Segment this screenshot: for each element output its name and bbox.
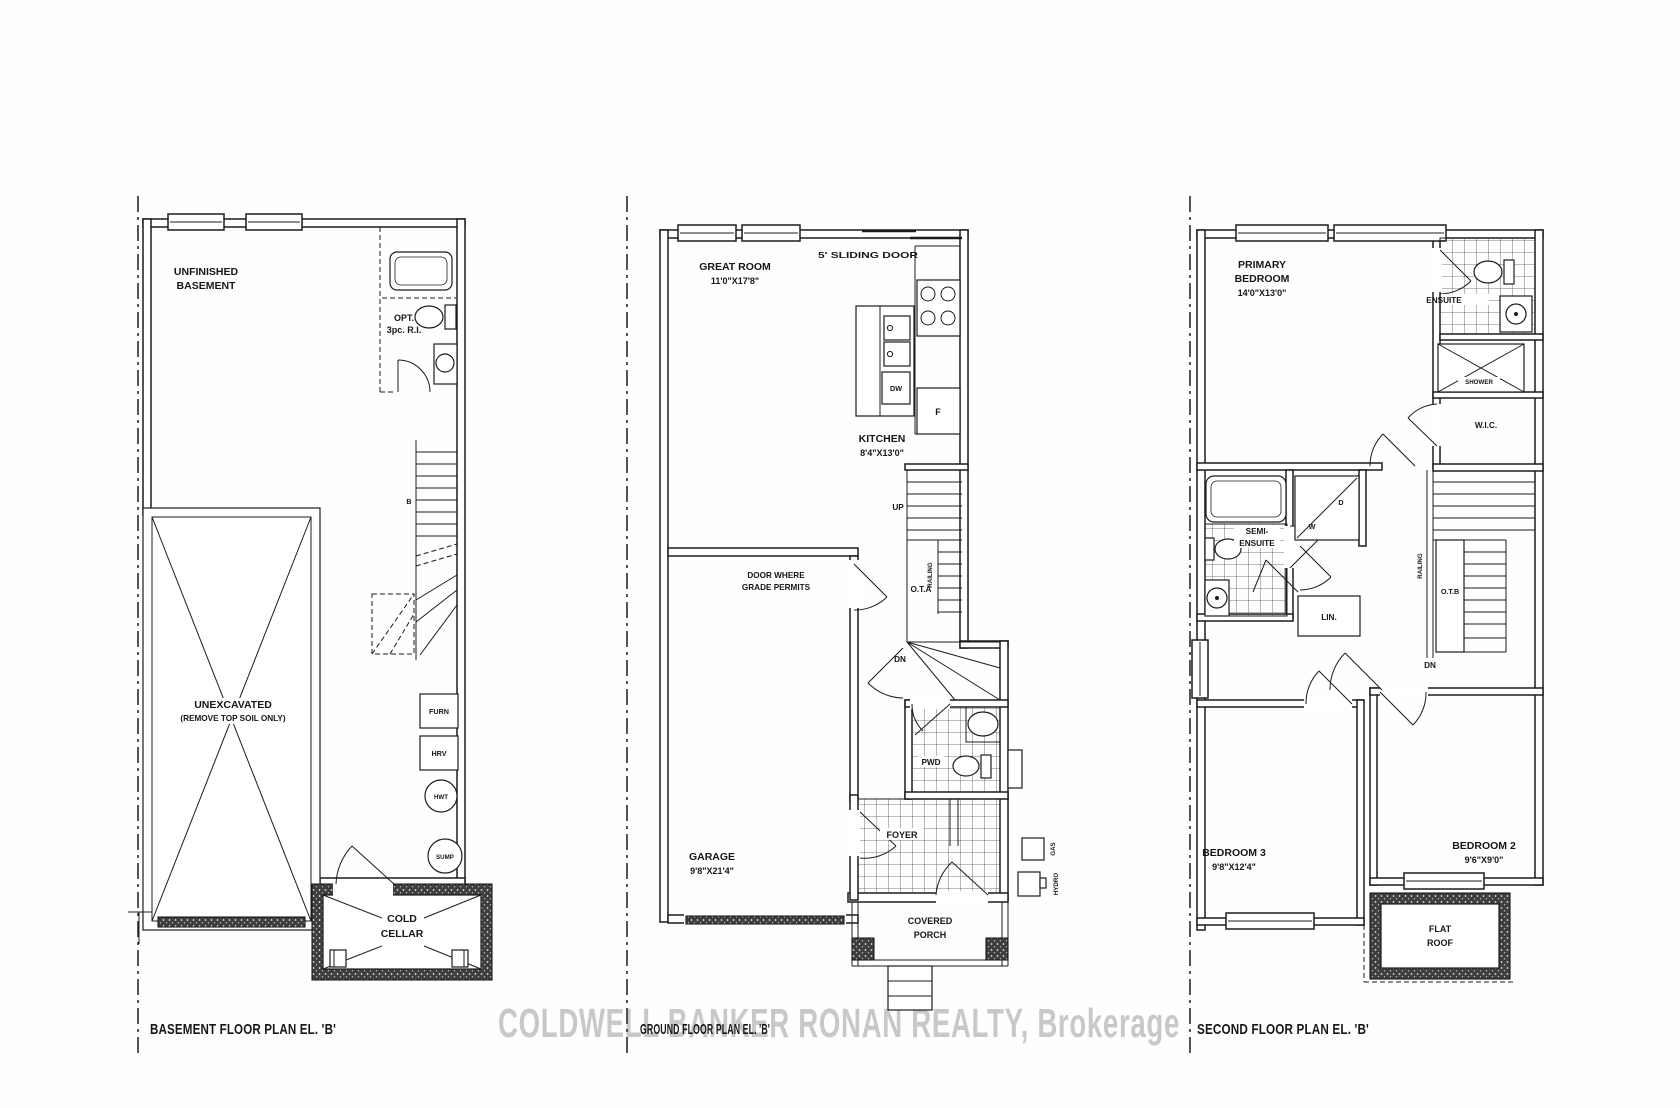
tub-icon [390,252,452,290]
ensuite [1431,238,1535,334]
tub-icon [1206,476,1286,522]
door-swing [398,360,430,392]
pwd-label: PWD [921,758,940,767]
hrv-label: HRV [431,749,446,758]
ground-title: GROUND FLOOR PLAN EL. 'B' [640,1021,770,1038]
semi-ensuite-label: SEMI- [1246,527,1269,536]
porch-label2: PORCH [914,930,947,940]
garage-label: GARAGE [689,851,735,863]
hall-door-swing [1330,653,1382,690]
dishwasher-label: DW [890,384,902,393]
beam-label: B [406,497,411,506]
kitchen-island [856,306,914,416]
great-room-label: GREAT ROOM [699,261,771,273]
sink-icon [1205,580,1229,616]
dn-label: DN [894,655,906,664]
fridge-label: F [935,407,941,417]
porch-post [986,938,1008,960]
bedroom2-label: BEDROOM 2 [1452,840,1516,852]
porch-step [888,966,932,1010]
linen-label: LIN. [1321,613,1336,622]
washer-label: W [1309,522,1316,531]
hall-doors [1304,653,1428,725]
flat-roof-label2: ROOF [1427,938,1454,948]
laundry-closet [1295,476,1359,590]
primary-dim: 14'0"X13'0" [1238,288,1287,298]
bedroom2-dim: 9'6"X9'0" [1465,855,1504,865]
hydro-meter-icon [1018,872,1046,896]
shower-label: SHOWER [1465,379,1493,386]
dryer-label: D [1338,498,1343,507]
unexcavated-area [128,508,320,944]
basement-title: BASEMENT FLOOR PLAN EL. 'B' [150,1021,336,1038]
wic [1408,404,1442,446]
floorplan-drawing: COLDWELL BANKER RONAN REALTY, Brokerage … [0,0,1680,1108]
foyer [848,799,1000,904]
floorplan-sheet: COLDWELL BANKER RONAN REALTY, Brokerage … [0,0,1680,1108]
primary-label2: BEDROOM [1235,273,1290,285]
sliding-door-label: 5' SLIDING DOOR [818,251,918,260]
cold-cellar-label2: CELLAR [381,928,424,940]
opt-ri-label: 3pc. R.I. [387,325,422,335]
flat-roof-label: FLAT [1429,924,1452,934]
otb-label: O.T.B [1441,587,1459,596]
second-stairs [1427,470,1535,658]
porch-post [852,938,874,960]
basement-plan: UNEXCAVATED (REMOVE TOP SOIL ONLY) OPT. … [128,196,492,1058]
unexcavated-label: UNEXCAVATED [194,699,272,711]
grade-door-label: DOOR WHERE [747,571,805,580]
dn-label: DN [1424,661,1436,670]
basement-room-label: UNFINISHED [174,266,239,278]
bedroom3-label: BEDROOM 3 [1202,847,1266,859]
grade-door-label2: GRADE PERMITS [742,583,811,592]
unexcavated-note: (REMOVE TOP SOIL ONLY) [180,714,286,723]
watermark: COLDWELL BANKER RONAN REALTY, Brokerage [498,1000,1180,1046]
gas-meter-icon [1022,838,1044,860]
semi-ensuite-label2: ENSUITE [1239,539,1275,548]
second-title: SECOND FLOOR PLAN EL. 'B' [1197,1021,1369,1038]
up-label: UP [892,503,904,512]
hwt-label: HWT [434,794,448,801]
garage-door-sill [686,916,844,924]
bedroom3-dim: 9'8"X12'4" [1212,862,1256,872]
kitchen-label: KITCHEN [859,433,906,445]
second-plan: ENSUITE SHOWER W.I.C. SEMI- ENSUITE [1190,196,1543,1058]
railing-label: RAILING [927,562,934,588]
basement-stairs [372,440,457,660]
primary-door-swing [1370,434,1415,466]
toilet-icon [1474,260,1514,284]
basement-room-label2: BASEMENT [177,280,237,292]
ota-label: O.T.A [911,585,932,594]
gas-label: GAS [1050,842,1057,855]
bathroom-roughin [380,227,457,392]
foyer-label: FOYER [886,830,918,840]
furnace-label: FURN [429,707,449,716]
cold-cellar-label: COLD [387,913,417,925]
stove-icon [917,280,960,336]
primary-label: PRIMARY [1238,259,1286,271]
hydro-label: HYDRO [1053,873,1060,896]
sink-icon [434,344,457,384]
door-swing [1300,546,1331,590]
great-room-dim: 11'0"X17'8" [711,276,759,286]
ensuite-label: ENSUITE [1426,296,1462,305]
ground-plan: 5' SLIDING DOOR DW F [627,196,1060,1058]
ground-stairs [868,470,1000,700]
sink-icon [1500,296,1532,332]
kitchen-dim: 8'4"X13'0" [860,448,904,458]
kitchen-counter [915,246,960,434]
porch-label: COVERED [908,916,953,926]
railing-label: RAILING [1417,553,1424,579]
garage-dim: 9'8"X21'4" [690,866,734,876]
wic-label: W.I.C. [1475,421,1497,430]
opt-label: OPT. [394,313,414,323]
sump-label: SUMP [436,854,454,861]
